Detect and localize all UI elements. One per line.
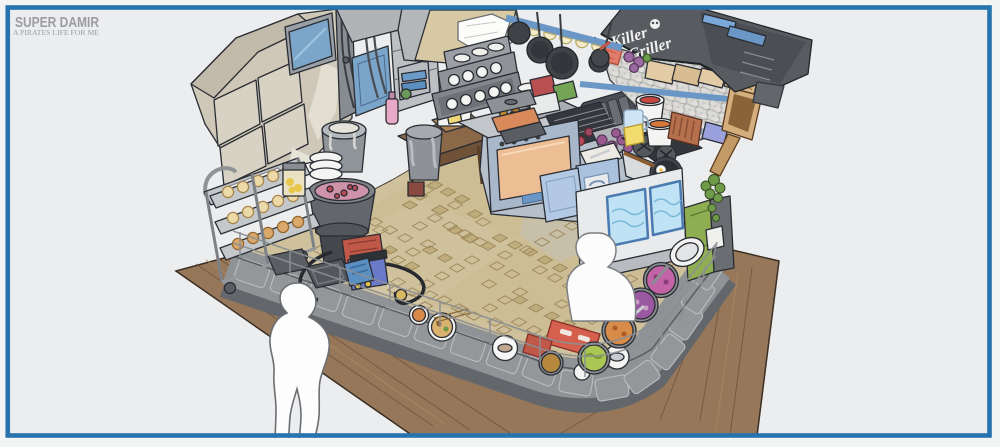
svg-text:A PIRATES LIFE FOR ME: A PIRATES LIFE FOR ME — [13, 28, 99, 37]
